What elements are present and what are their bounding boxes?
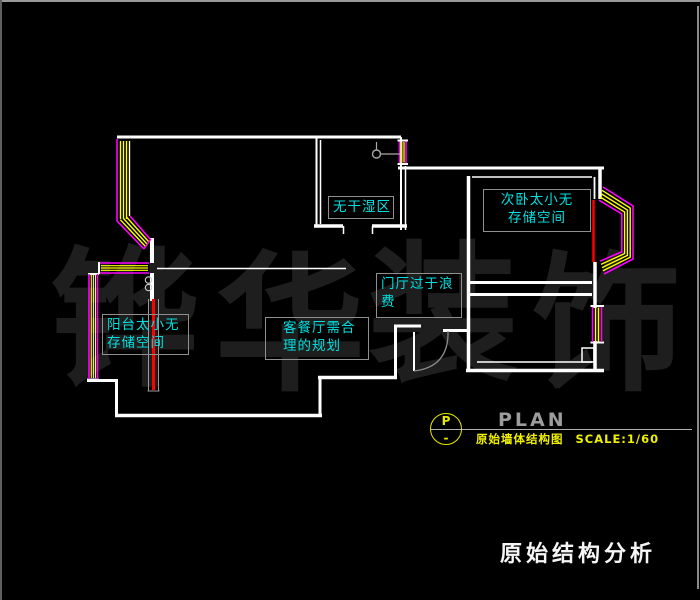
window-balcony-top [100,263,149,273]
note-bathroom-line: 无干湿区 [333,198,389,216]
note-bedroom: 次卧太小无 存储空间 [483,189,591,232]
note-living-line1: 客餐厅需合 [270,319,364,337]
window-bay [599,187,633,274]
floor-plan-svg [0,0,700,600]
entry-door-arc [414,331,448,371]
plan-symbol-dash: - [431,432,461,445]
cad-canvas: 铧 华 装 饰 [0,0,700,600]
window-connector [398,141,409,165]
plan-symbol-letter: P [431,414,461,428]
window-kitchen [591,306,605,343]
canvas-border-right [697,6,699,589]
note-balcony: 阳台太小无 存储空间 [102,314,189,355]
canvas-border-top [0,0,700,2]
plan-symbol-circle: P - [430,413,462,445]
title-block-caption: 原始墙体结构图SCALE:1/60 [476,431,659,447]
note-living-line2: 理的规划 [270,337,364,355]
note-hallway: 门厅过于浪 费 [376,273,462,318]
entry-door [414,331,448,371]
note-bathroom: 无干湿区 [328,196,394,219]
note-living: 客餐厅需合 理的规划 [265,317,369,360]
note-balcony-line1: 阳台太小无 [107,316,184,334]
canvas-border-left [0,0,2,600]
flue-square [582,348,594,362]
note-bedroom-line1: 次卧太小无 [488,191,586,209]
caption-text: 原始墙体结构图 [476,432,564,446]
plan-label: PLAN [498,409,567,431]
note-balcony-line2: 存储空间 [107,334,184,352]
note-hallway-line1: 门厅过于浪 [381,275,457,293]
window-top-left [117,139,151,249]
note-hallway-line2: 费 [381,293,457,311]
page-title: 原始结构分析 [500,536,656,568]
scale-text: SCALE:1/60 [576,432,660,446]
window-balcony-left [89,274,98,379]
shower-symbol [373,142,401,158]
wall-lines [87,137,604,417]
note-bedroom-line2: 存储空间 [488,209,586,227]
